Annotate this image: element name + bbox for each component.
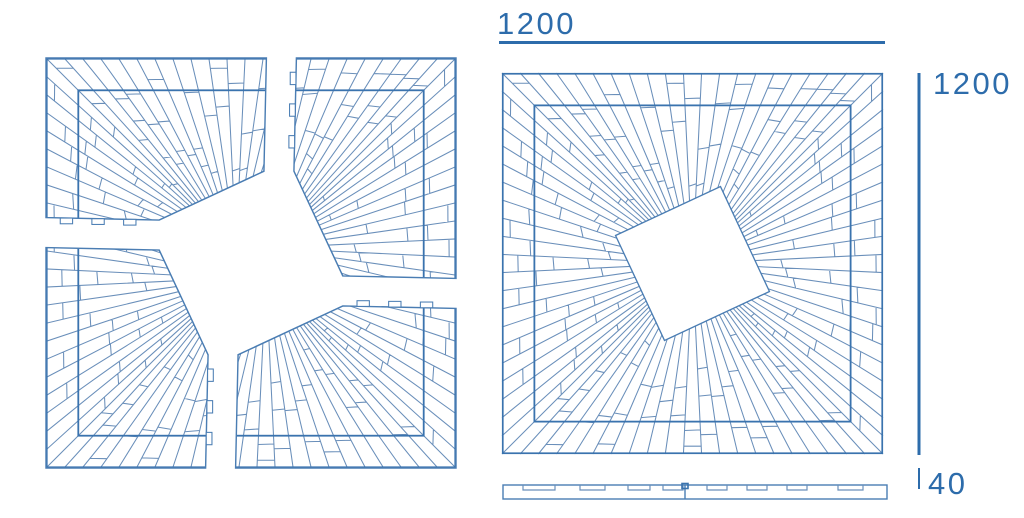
panel-assembly-drawing: 1200 1200 40	[0, 0, 1024, 518]
exploded-panel-view	[46, 58, 456, 468]
width-dimension-label: 1200	[497, 8, 576, 39]
side-profile-view	[503, 484, 887, 500]
assembled-panel-view	[502, 73, 883, 454]
thickness-dimension-label: 40	[928, 468, 967, 499]
profile-grooves	[523, 485, 863, 490]
technical-drawing-svg	[0, 0, 1024, 518]
height-dimension-label: 1200	[933, 68, 1012, 99]
